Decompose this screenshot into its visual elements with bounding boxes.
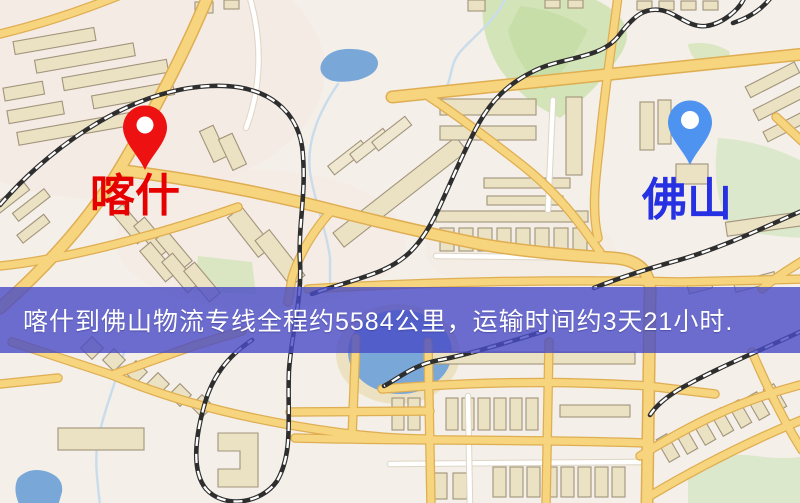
pond-southwest <box>15 470 62 503</box>
red-pin-hole <box>137 117 154 134</box>
blue-pin-icon <box>668 100 712 165</box>
map-canvas[interactable] <box>0 0 800 503</box>
blue-pin-hole <box>681 111 699 129</box>
foshan-marker-label: 佛山 <box>642 177 732 222</box>
route-info-banner: 喀什到佛山物流专线全程约5584公里，运输时间约3天21小时. <box>0 287 800 353</box>
route-info-text: 喀什到佛山物流专线全程约5584公里，运输时间约3天21小时. <box>23 302 733 338</box>
foshan-marker-pin[interactable] <box>668 100 712 165</box>
map-screenshot: 喀什 佛山 喀什到佛山物流专线全程约5584公里，运输时间约3天21小时. <box>0 0 800 503</box>
kashi-marker-label: 喀什 <box>90 173 180 218</box>
lake-north <box>320 49 378 82</box>
